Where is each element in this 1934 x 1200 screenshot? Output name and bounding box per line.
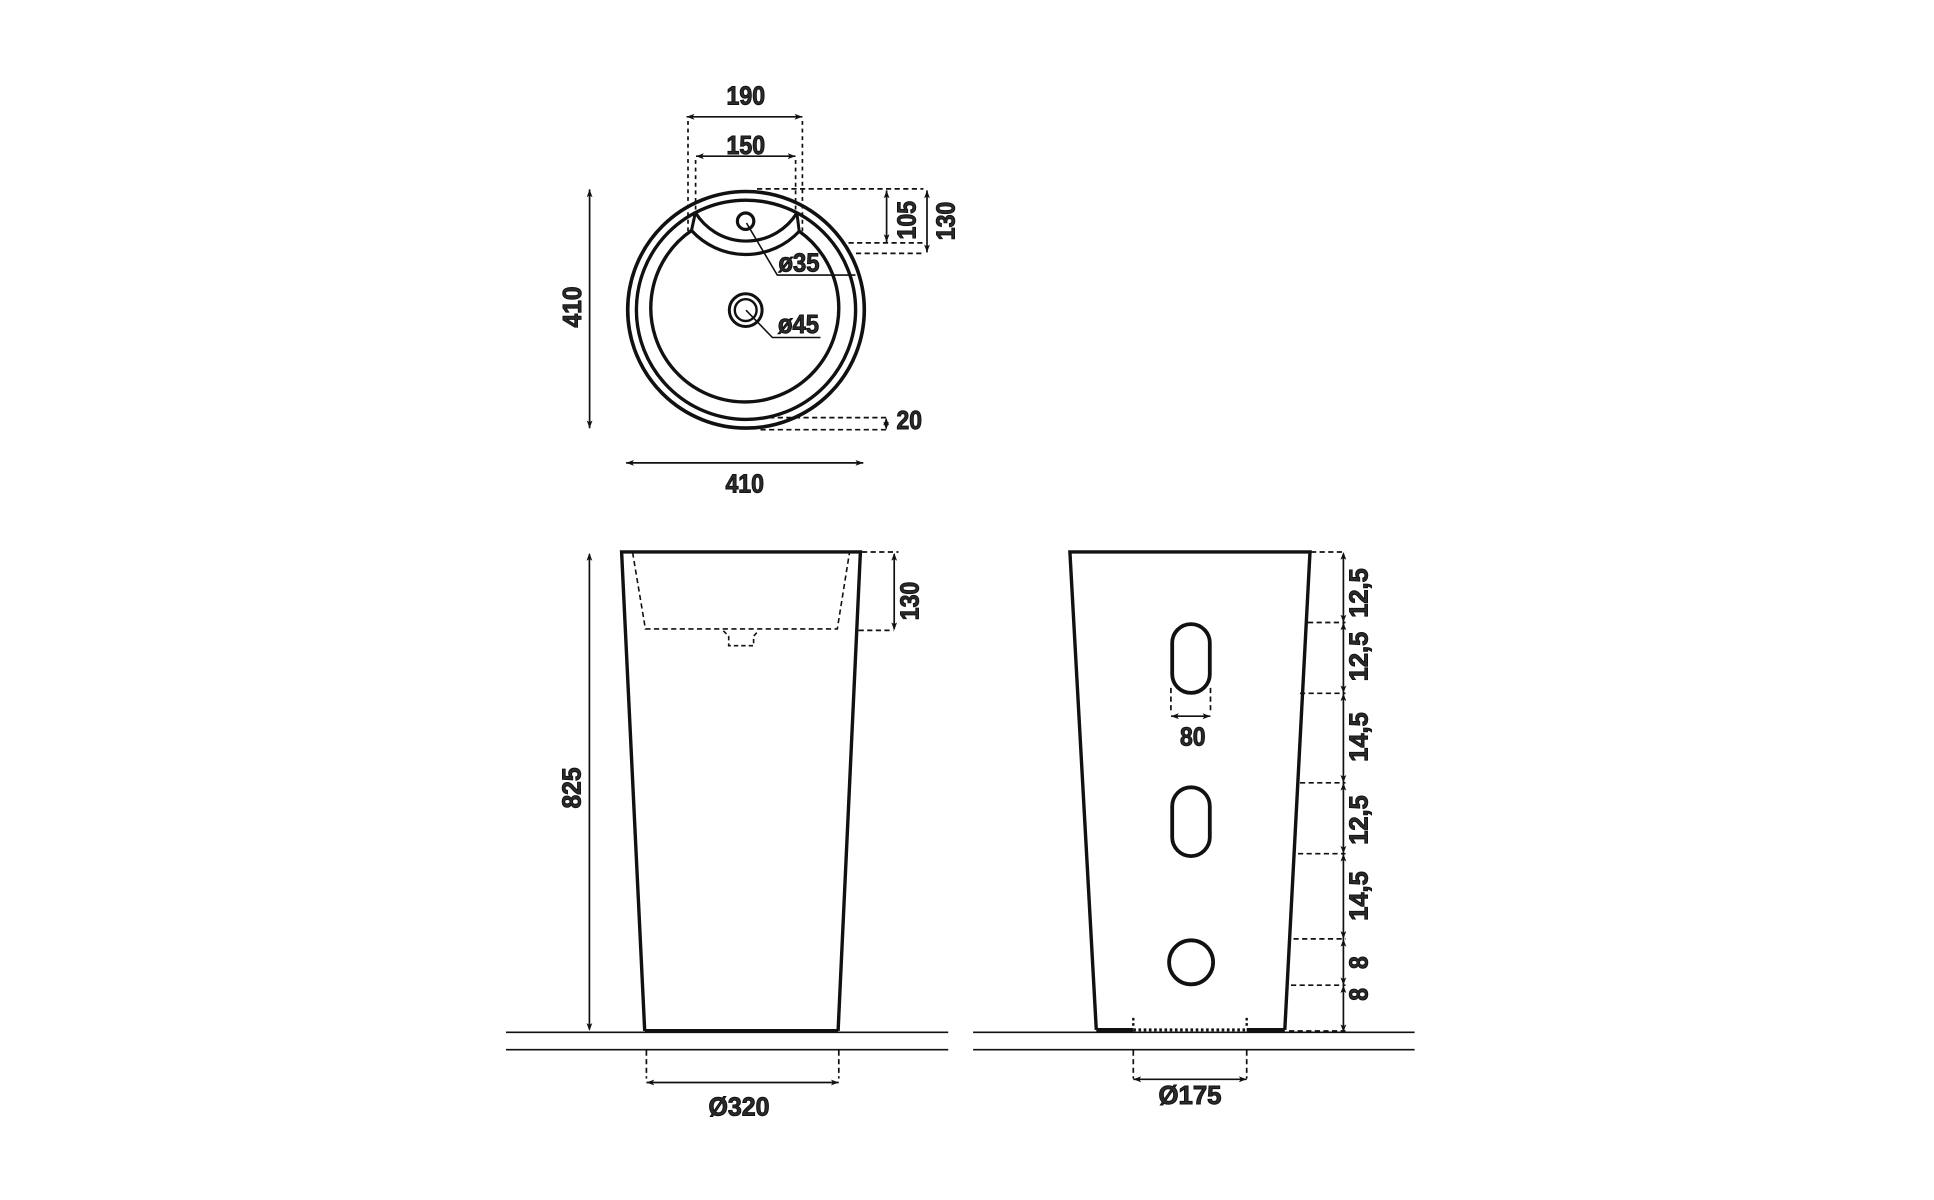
svg-text:20: 20 xyxy=(897,407,923,435)
svg-text:12,5: 12,5 xyxy=(1345,632,1373,682)
svg-text:410: 410 xyxy=(559,287,587,328)
svg-text:150: 150 xyxy=(727,132,766,160)
svg-text:190: 190 xyxy=(727,83,766,111)
svg-text:14,5: 14,5 xyxy=(1345,712,1373,762)
svg-text:ø45: ø45 xyxy=(778,311,819,339)
svg-text:410: 410 xyxy=(725,471,764,499)
svg-text:12,5: 12,5 xyxy=(1345,568,1373,618)
svg-text:8: 8 xyxy=(1345,988,1373,1001)
svg-text:105: 105 xyxy=(894,201,922,240)
svg-text:130: 130 xyxy=(896,582,924,621)
svg-text:130: 130 xyxy=(933,202,961,241)
svg-text:825: 825 xyxy=(559,768,587,809)
svg-text:8: 8 xyxy=(1345,956,1373,969)
svg-text:Ø175: Ø175 xyxy=(1159,1082,1222,1110)
svg-text:ø35: ø35 xyxy=(779,250,820,278)
svg-text:80: 80 xyxy=(1180,723,1206,751)
svg-text:Ø320: Ø320 xyxy=(709,1094,770,1122)
svg-text:12,5: 12,5 xyxy=(1345,795,1373,845)
svg-text:14,5: 14,5 xyxy=(1345,871,1373,921)
